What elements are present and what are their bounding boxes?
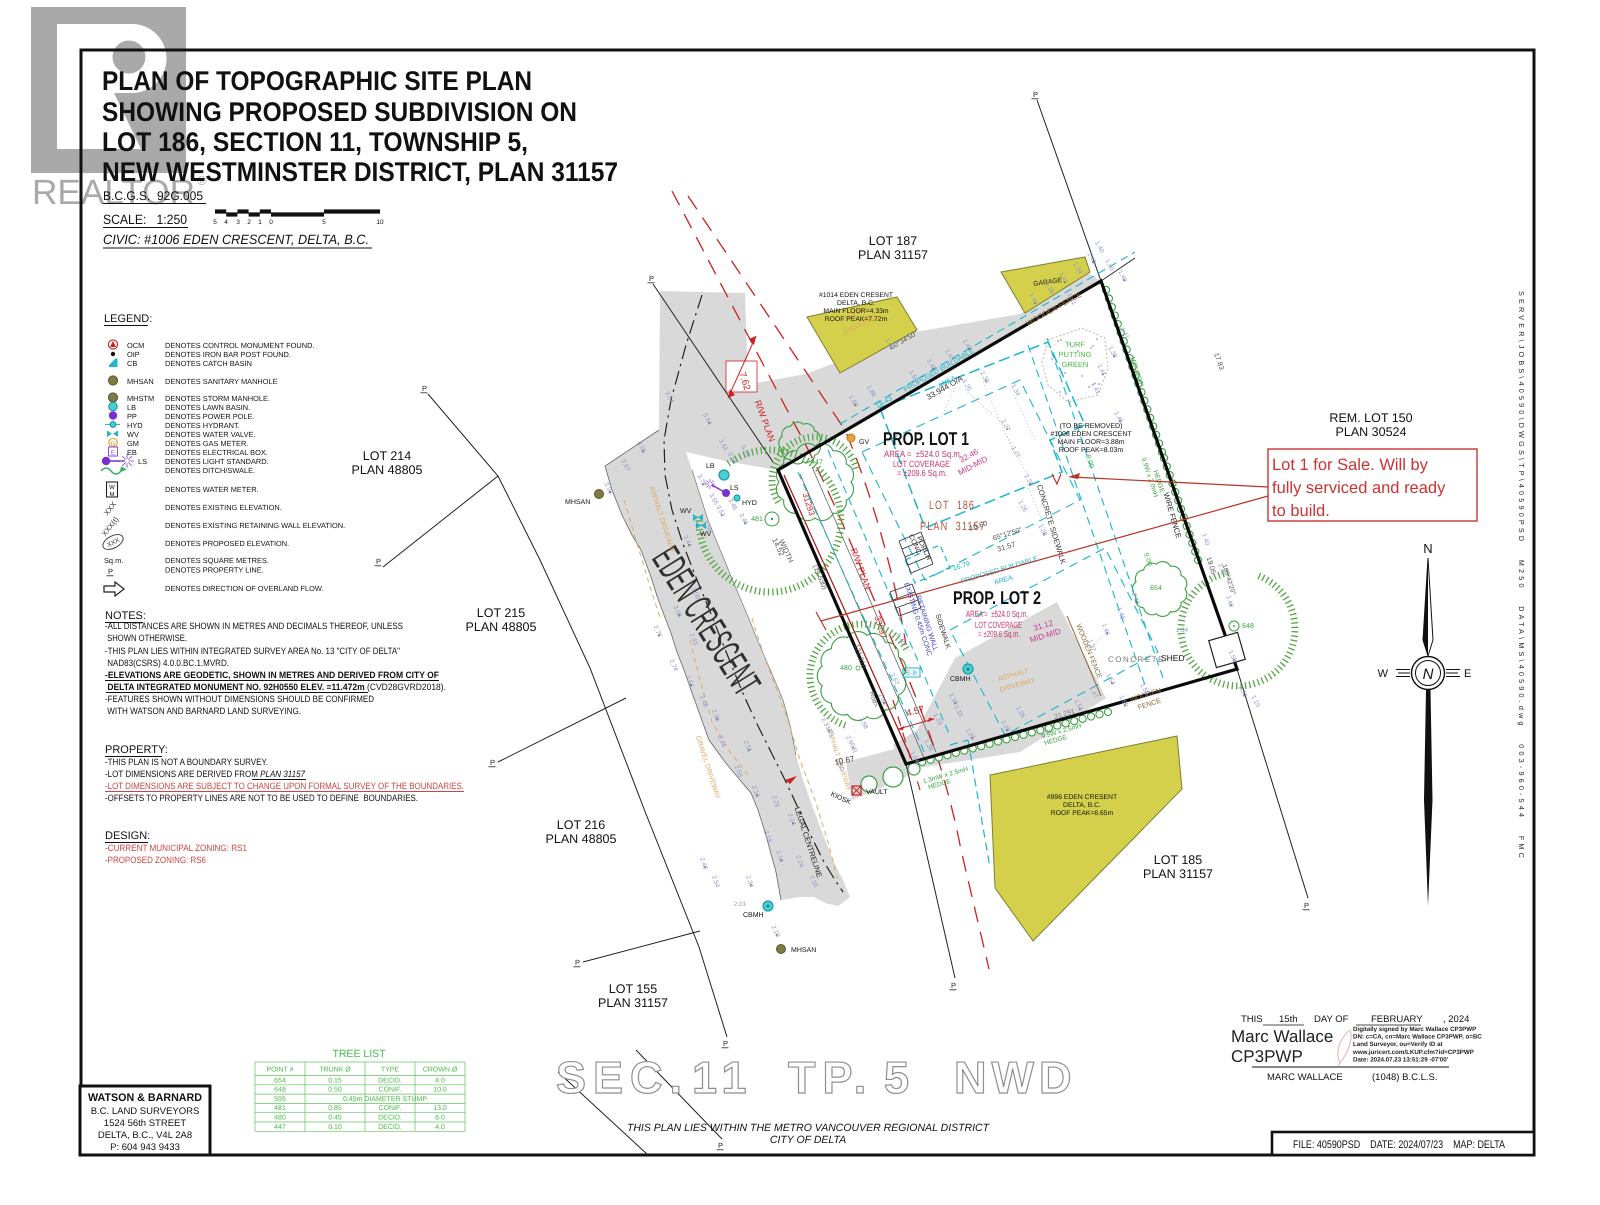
svg-text:CROWN Ø: CROWN Ø — [423, 1066, 458, 1074]
svg-text:DENOTES SQUARE METRES.: DENOTES SQUARE METRES. — [165, 556, 269, 565]
svg-text:DN: c=CA, cn=Marc Wallace CP3P: DN: c=CA, cn=Marc Wallace CP3PWP, o=BC — [1353, 1034, 1482, 1041]
svg-text:SERVER\JOBS\40590\DWGS\TP\4059: SERVER\JOBS\40590\DWGS\TP\40590PSD M250 … — [1517, 291, 1526, 861]
svg-text:DENOTES LAWN BASIN.: DENOTES LAWN BASIN. — [165, 403, 250, 412]
svg-text:LS: LS — [730, 485, 739, 492]
svg-text:LOT 187: LOT 187 — [869, 234, 917, 248]
svg-text:POINT #: POINT # — [266, 1067, 293, 1074]
svg-text:LOT 186: LOT 186 — [929, 498, 975, 512]
svg-text:P: P — [1033, 90, 1038, 99]
svg-text:1: 1 — [258, 219, 262, 226]
svg-text:PUTTING: PUTTING — [1059, 350, 1092, 359]
svg-text:10.0: 10.0 — [433, 1087, 447, 1094]
svg-text:PLAN 31157: PLAN 31157 — [920, 519, 986, 533]
svg-text:Marc Wallace: Marc Wallace — [1231, 1027, 1333, 1046]
svg-text:MHSAN: MHSAN — [127, 377, 154, 386]
svg-text:648: 648 — [274, 1087, 286, 1094]
svg-text:to build.: to build. — [1272, 502, 1330, 520]
svg-text:MAIN FLOOR=4.33m: MAIN FLOOR=4.33m — [823, 308, 888, 315]
svg-text:PLAN 31157: PLAN 31157 — [858, 248, 928, 262]
svg-text:(1048) B.C.L.S.: (1048) B.C.L.S. — [1372, 1072, 1437, 1083]
svg-text:DECID.: DECID. — [378, 1077, 402, 1084]
svg-text:SHOWING PROPOSED SUBDIVISION O: SHOWING PROPOSED SUBDIVISION ON — [102, 97, 577, 127]
svg-text:-CURRENT MUNICIPAL ZONING: RS1: -CURRENT MUNICIPAL ZONING: RS1 — [105, 843, 247, 853]
svg-text:481: 481 — [274, 1105, 286, 1112]
svg-text:#1014 EDEN CRESENT: #1014 EDEN CRESENT — [819, 292, 893, 299]
svg-text:PLAN 30524: PLAN 30524 — [1336, 425, 1407, 439]
svg-text:DENOTES HYDRANT.: DENOTES HYDRANT. — [165, 421, 240, 430]
svg-text:TYPE: TYPE — [381, 1067, 400, 1074]
svg-text:TREE LIST: TREE LIST — [332, 1048, 386, 1060]
svg-text:TP.: TP. — [788, 1052, 873, 1103]
svg-text:REM. LOT 150: REM. LOT 150 — [1329, 411, 1412, 425]
svg-text:DENOTES WATER METER.: DENOTES WATER METER. — [165, 485, 259, 494]
svg-text:W: W — [1378, 668, 1389, 680]
svg-text:-FEATURES SHOWN WITHOUT DIMENS: -FEATURES SHOWN WITHOUT DIMENSIONS SHOUL… — [105, 694, 374, 704]
svg-text:447: 447 — [274, 1124, 286, 1131]
svg-text:WITH WATSON AND BARNARD LAND S: WITH WATSON AND BARNARD LAND SURVEYING. — [105, 706, 301, 716]
svg-text:-ELEVATIONS ARE GEODETIC, SHOW: -ELEVATIONS ARE GEODETIC, SHOWN IN METRE… — [105, 670, 439, 680]
svg-text:WV: WV — [700, 531, 712, 538]
svg-text:DAY OF: DAY OF — [1314, 1014, 1349, 1025]
svg-text:0.50: 0.50 — [328, 1087, 342, 1094]
svg-text:NEW WESTMINSTER DISTRICT, PLAN: NEW WESTMINSTER DISTRICT, PLAN 31157 — [102, 157, 618, 187]
svg-text:DENOTES LIGHT STANDARD.: DENOTES LIGHT STANDARD. — [165, 457, 269, 466]
svg-text:DESIGN:: DESIGN: — [105, 830, 150, 842]
svg-text:CBMH: CBMH — [950, 676, 971, 683]
svg-text:654: 654 — [274, 1077, 286, 1084]
svg-text:PROP. LOT 2: PROP. LOT 2 — [953, 587, 1041, 608]
svg-text:GV: GV — [859, 439, 869, 446]
svg-text:OCM: OCM — [127, 341, 144, 350]
svg-text:6.0: 6.0 — [435, 1115, 445, 1122]
svg-text:N: N — [1423, 666, 1434, 683]
svg-text:NAD83(CSRS) 4.0.0.BC.1.MVRD.: NAD83(CSRS) 4.0.0.BC.1.MVRD. — [105, 658, 229, 668]
svg-text:VAULT: VAULT — [866, 789, 888, 796]
svg-text:P: P — [951, 981, 956, 990]
svg-text:648: 648 — [1242, 623, 1254, 630]
svg-text:CB: CB — [127, 359, 137, 368]
svg-text:Lot 1 for Sale. Will by: Lot 1 for Sale. Will by — [1272, 456, 1429, 474]
svg-text:-THIS PLAN IS NOT A BOUNDARY S: -THIS PLAN IS NOT A BOUNDARY SURVEY. — [105, 757, 268, 767]
svg-text:0.85: 0.85 — [328, 1105, 342, 1112]
svg-text:P: P — [718, 1141, 723, 1150]
svg-text:654: 654 — [1150, 585, 1162, 592]
svg-text:0.45: 0.45 — [328, 1115, 342, 1122]
svg-text:www.juricert.com/LKUP.cfm?id=C: www.juricert.com/LKUP.cfm?id=CP3PWP — [1352, 1049, 1474, 1056]
svg-text:Sq.m.: Sq.m. — [104, 556, 123, 565]
svg-text:DENOTES IRON BAR POST FOUND.: DENOTES IRON BAR POST FOUND. — [165, 350, 291, 359]
svg-text:DELTA, B.C., V4L 2A8: DELTA, B.C., V4L 2A8 — [98, 1130, 192, 1141]
svg-text:DELTA, B.C.: DELTA, B.C. — [837, 300, 875, 307]
svg-text:DENOTES EXISTING RETAINING WAL: DENOTES EXISTING RETAINING WALL ELEVATIO… — [165, 521, 345, 530]
svg-text:DECID.: DECID. — [378, 1124, 402, 1131]
svg-text:WATSON & BARNARD: WATSON & BARNARD — [88, 1092, 202, 1104]
svg-text:-LOT DIMENSIONS ARE DERIVED FR: -LOT DIMENSIONS ARE DERIVED FROM PLAN 31… — [105, 769, 306, 779]
svg-text:1524 56th STREET: 1524 56th STREET — [104, 1118, 187, 1129]
svg-text:LOT 214: LOT 214 — [363, 449, 411, 463]
svg-text:5: 5 — [322, 219, 326, 226]
svg-text:B.C. LAND SURVEYORS: B.C. LAND SURVEYORS — [91, 1106, 200, 1117]
svg-text:DENOTES DITCH/SWALE.: DENOTES DITCH/SWALE. — [165, 466, 255, 475]
svg-text:P: P — [723, 1039, 728, 1048]
svg-text:M: M — [110, 491, 115, 498]
svg-text:0.45m DIAMETER STUMP: 0.45m DIAMETER STUMP — [343, 1096, 427, 1103]
svg-text:ROOF PEAK=6.65m: ROOF PEAK=6.65m — [1051, 810, 1114, 817]
svg-text:ROOF PEAK=7.72m: ROOF PEAK=7.72m — [825, 316, 888, 323]
svg-text:THIS PLAN LIES WITHIN THE METR: THIS PLAN LIES WITHIN THE METRO VANCOUVE… — [627, 1122, 991, 1134]
svg-text:DENOTES SANITARY MANHOLE: DENOTES SANITARY MANHOLE — [165, 377, 278, 386]
svg-text:PROP. LOT 1: PROP. LOT 1 — [883, 428, 969, 449]
svg-text:W: W — [109, 484, 115, 491]
svg-text:DENOTES CONTROL MONUMENT FOUND: DENOTES CONTROL MONUMENT FOUND. — [165, 341, 314, 350]
svg-text:HYD: HYD — [742, 500, 757, 507]
svg-text:CIVIC: #1006 EDEN CRESCENT, DE: CIVIC: #1006 EDEN CRESCENT, DELTA, B.C. — [103, 232, 369, 247]
svg-text:DENOTES ELECTRICAL BOX.: DENOTES ELECTRICAL BOX. — [165, 448, 268, 457]
svg-text:SCALE: 1:250: SCALE: 1:250 — [103, 212, 187, 227]
svg-text:PLAN 31157: PLAN 31157 — [1143, 867, 1213, 881]
svg-text:= ±209.6 Sq.m.: = ±209.6 Sq.m. — [897, 468, 947, 478]
svg-text:5: 5 — [213, 219, 217, 226]
svg-text:FILE: 40590PSD DATE: 2024/0: FILE: 40590PSD DATE: 2024/07/23 MAP: DEL… — [1293, 1139, 1506, 1151]
svg-text:2.01: 2.01 — [734, 901, 747, 908]
svg-text:NWD: NWD — [954, 1052, 1076, 1103]
svg-text:LB: LB — [706, 463, 715, 470]
svg-text:11: 11 — [692, 1052, 754, 1103]
svg-text:MARC WALLACE: MARC WALLACE — [1267, 1072, 1343, 1083]
svg-text:MAIN FLOOR=3.88m: MAIN FLOOR=3.88m — [1057, 439, 1124, 446]
svg-text:480: 480 — [274, 1115, 286, 1122]
svg-text:ROOF PEAK=8.03m: ROOF PEAK=8.03m — [1059, 447, 1124, 454]
svg-text:Land Surveyor, ou=Verify ID at: Land Surveyor, ou=Verify ID at — [1353, 1041, 1443, 1048]
svg-text:TURF: TURF — [1065, 340, 1085, 349]
svg-text:E: E — [111, 450, 116, 457]
svg-text:SHOWN OTHERWISE.: SHOWN OTHERWISE. — [105, 633, 187, 643]
svg-text:10: 10 — [376, 219, 384, 226]
svg-text:P: P — [1304, 901, 1309, 910]
svg-text:13.0: 13.0 — [433, 1105, 447, 1112]
svg-text:4.0: 4.0 — [435, 1077, 445, 1084]
svg-text:0.15: 0.15 — [328, 1077, 342, 1084]
svg-text:LOT 215: LOT 215 — [477, 606, 525, 620]
svg-text:4.0: 4.0 — [435, 1124, 445, 1131]
svg-text:DENOTES WATER VALVE.: DENOTES WATER VALVE. — [165, 430, 255, 439]
svg-text:LOT 216: LOT 216 — [557, 818, 605, 832]
svg-text:-LOT DIMENSIONS ARE SUBJECT TO: -LOT DIMENSIONS ARE SUBJECT TO CHANGE UP… — [105, 781, 464, 791]
svg-text:THIS: THIS — [1241, 1014, 1263, 1025]
svg-text:-ALL DISTANCES ARE SHOWN IN ME: -ALL DISTANCES ARE SHOWN IN METRES AND D… — [105, 621, 403, 631]
svg-text:(TO BE REMOVED): (TO BE REMOVED) — [1060, 422, 1123, 430]
svg-text:595: 595 — [274, 1096, 286, 1103]
svg-text:SEC.: SEC. — [556, 1052, 689, 1103]
svg-text:N: N — [1423, 541, 1432, 556]
svg-text:B.C.G.S. 92G.005: B.C.G.S. 92G.005 — [103, 189, 203, 203]
svg-text:#996 EDEN CRESENT: #996 EDEN CRESENT — [1047, 794, 1117, 801]
svg-text:DELTA INTEGRATED MONUMENT NO.: DELTA INTEGRATED MONUMENT NO. 92H0550 EL… — [105, 682, 446, 692]
svg-text:LOT 185: LOT 185 — [1154, 853, 1202, 867]
svg-text:WV: WV — [680, 508, 692, 515]
svg-text:AREA = ±524.0 Sq.m.: AREA = ±524.0 Sq.m. — [884, 449, 962, 459]
svg-text:CP3PWP: CP3PWP — [1231, 1047, 1303, 1066]
svg-text:5: 5 — [884, 1052, 916, 1103]
svg-text:3: 3 — [236, 219, 240, 226]
svg-text:EB: EB — [127, 448, 137, 457]
svg-text:DENOTES GAS METER.: DENOTES GAS METER. — [165, 439, 248, 448]
svg-text:Digitally signed by Marc Walla: Digitally signed by Marc Wallace CP3PWP — [1353, 1026, 1476, 1033]
svg-text:GREEN: GREEN — [1062, 360, 1089, 369]
svg-text:PROPERTY:: PROPERTY: — [105, 744, 168, 756]
svg-text:CONIF.: CONIF. — [379, 1105, 402, 1112]
svg-text:MHSTM: MHSTM — [127, 394, 154, 403]
svg-text:CONIF.: CONIF. — [379, 1087, 402, 1094]
svg-text:2: 2 — [247, 219, 251, 226]
svg-text:WV: WV — [127, 430, 139, 439]
svg-text:OIP: OIP — [127, 350, 140, 359]
svg-text:15th: 15th — [1279, 1014, 1298, 1025]
svg-text:MHSAN: MHSAN — [565, 499, 590, 506]
svg-text:P: P — [490, 758, 495, 767]
svg-text:P: P — [422, 384, 427, 393]
svg-text:PLAN 48805: PLAN 48805 — [546, 832, 617, 846]
svg-text:SHED: SHED — [1161, 653, 1185, 663]
svg-text:MHSAN: MHSAN — [791, 947, 816, 954]
svg-text:fully serviced and ready: fully serviced and ready — [1272, 479, 1446, 497]
svg-text:-PROPOSED ZONING: RS6: -PROPOSED ZONING: RS6 — [105, 855, 206, 865]
svg-text:-THIS PLAN LIES WITHIN INTEGRA: -THIS PLAN LIES WITHIN INTEGRATED SURVEY… — [105, 646, 400, 656]
svg-text:PP: PP — [127, 412, 137, 421]
svg-text:1.34: 1.34 — [1176, 627, 1189, 634]
svg-text:PLAN 48805: PLAN 48805 — [352, 463, 423, 477]
svg-text:LOT 155: LOT 155 — [609, 982, 657, 996]
svg-text:DENOTES EXISTING ELEVATION.: DENOTES EXISTING ELEVATION. — [165, 503, 282, 512]
svg-text:HYD: HYD — [127, 421, 143, 430]
svg-text:PLAN 48805: PLAN 48805 — [466, 620, 537, 634]
svg-text:P: P — [575, 958, 580, 967]
svg-text:DECID.: DECID. — [378, 1115, 402, 1122]
svg-text:= ±209.6 Sq.m.: = ±209.6 Sq.m. — [978, 629, 1020, 639]
svg-text:480: 480 — [840, 665, 852, 672]
svg-text:481: 481 — [751, 516, 763, 523]
svg-text:P: P — [649, 274, 654, 283]
svg-text:DENOTES CATCH BASIN: DENOTES CATCH BASIN — [165, 359, 252, 368]
svg-text:447: 447 — [811, 459, 823, 466]
svg-text:LEGEND:: LEGEND: — [104, 313, 152, 325]
svg-text:P: 604 943 9433: P: 604 943 9433 — [110, 1142, 180, 1153]
svg-text:DELTA, B.C.: DELTA, B.C. — [1063, 802, 1101, 809]
svg-text:CITY OF DELTA: CITY OF DELTA — [770, 1134, 846, 1146]
svg-text:CONCRETE: CONCRETE — [1108, 655, 1165, 664]
svg-text:PLAN OF TOPOGRAPHIC SITE PLAN: PLAN OF TOPOGRAPHIC SITE PLAN — [102, 66, 532, 96]
svg-text:DENOTES POWER POLE.: DENOTES POWER POLE. — [165, 412, 255, 421]
svg-text:FEBRUARY: FEBRUARY — [1371, 1014, 1423, 1025]
svg-text:Date: 2024.07.23 13:51:29 -07': Date: 2024.07.23 13:51:29 -07'00' — [1353, 1056, 1449, 1063]
svg-text:AREA = ±524.0 Sq.m.: AREA = ±524.0 Sq.m. — [966, 609, 1028, 619]
svg-text:DENOTES DIRECTION OF OVERLAND: DENOTES DIRECTION OF OVERLAND FLOW. — [165, 584, 324, 593]
svg-text:PLAN 31157: PLAN 31157 — [598, 996, 668, 1010]
svg-text:TRUNK Ø: TRUNK Ø — [319, 1066, 351, 1074]
svg-text:DENOTES STORM MANHOLE.: DENOTES STORM MANHOLE. — [165, 394, 270, 403]
svg-text:P: P — [108, 567, 113, 576]
svg-text:LS: LS — [138, 457, 147, 466]
svg-text:E-B: E-B — [906, 670, 917, 677]
svg-text:E: E — [1464, 668, 1471, 680]
svg-text:, 2024: , 2024 — [1443, 1014, 1469, 1025]
svg-text:0: 0 — [269, 219, 273, 226]
svg-text:LOT 186, SECTION 11, TOWNSHIP: LOT 186, SECTION 11, TOWNSHIP 5, — [102, 127, 528, 157]
svg-text:GM: GM — [127, 439, 139, 448]
svg-text:P: P — [376, 557, 381, 566]
svg-text:DENOTES PROPOSED ELEVATION.: DENOTES PROPOSED ELEVATION. — [165, 539, 289, 548]
svg-text:-OFFSETS TO PROPERTY LINES ARE: -OFFSETS TO PROPERTY LINES ARE NOT TO BE… — [105, 793, 418, 803]
svg-text:#1006 EDEN CRESCENT: #1006 EDEN CRESCENT — [1050, 431, 1132, 438]
svg-text:CBMH: CBMH — [743, 912, 764, 919]
svg-text:DENOTES PROPERTY LINE.: DENOTES PROPERTY LINE. — [165, 566, 264, 575]
svg-text:4: 4 — [224, 219, 228, 226]
svg-text:0.10: 0.10 — [328, 1124, 342, 1131]
svg-text:LB: LB — [127, 403, 136, 412]
